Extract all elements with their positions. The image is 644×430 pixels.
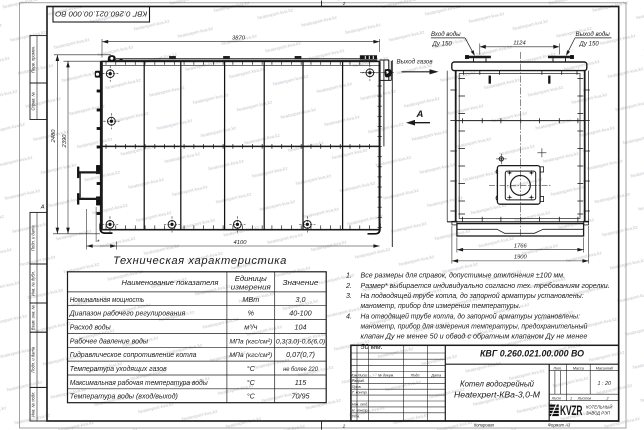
- svg-text:Дата: Дата: [430, 373, 441, 377]
- svg-text:Формат А3: Формат А3: [548, 423, 571, 428]
- svg-text:м³/ч: м³/ч: [244, 323, 257, 332]
- svg-text:3870: 3870: [232, 36, 246, 42]
- svg-text:Копировал: Копировал: [474, 423, 495, 428]
- svg-text:2: 2: [342, 424, 346, 429]
- svg-text:3,0: 3,0: [296, 295, 306, 304]
- svg-text:2.: 2.: [345, 281, 352, 290]
- svg-text:1.: 1.: [346, 271, 352, 280]
- svg-text:0,07(0,7): 0,07(0,7): [286, 350, 315, 359]
- svg-text:Вход воды: Вход воды: [431, 31, 461, 38]
- svg-text:КОТЕЛЬНЫЙ: КОТЕЛЬНЫЙ: [586, 405, 612, 410]
- svg-text:Heatexpert-КВа-3,0-М: Heatexpert-КВа-3,0-М: [454, 391, 540, 400]
- svg-text:Разраб.: Разраб.: [352, 379, 365, 383]
- svg-text:Подп. и дата: Подп. и дата: [30, 346, 35, 372]
- svg-text:115: 115: [295, 378, 307, 387]
- svg-text:МПа (кгс/см²): МПа (кгс/см²): [229, 338, 272, 345]
- svg-text:манометр, прибор для измерения: манометр, прибор для измерения температу…: [361, 301, 521, 310]
- svg-text:Все размеры для справок, допус: Все размеры для справок, допустимые откл…: [361, 271, 566, 280]
- svg-text:1: 1: [570, 396, 572, 400]
- svg-text:манометр, прибор для измерения: манометр, прибор для измерения температу…: [361, 321, 588, 330]
- svg-text:Номинальная мощность: Номинальная мощность: [70, 295, 145, 304]
- svg-text:%: %: [248, 309, 255, 318]
- svg-text:На отводящей трубе котла, до з: На отводящей трубе котла, до запорной ар…: [361, 311, 581, 320]
- svg-text:Котел водогрейный: Котел водогрейный: [460, 379, 535, 388]
- svg-text:Наименование показателя: Наименование показателя: [122, 278, 219, 287]
- svg-text:Температура воды (вход/выход): Температура воды (вход/выход): [70, 392, 179, 401]
- svg-text:Пров.: Пров.: [352, 385, 362, 389]
- svg-text:1766: 1766: [514, 243, 528, 249]
- svg-text:1900: 1900: [514, 255, 528, 261]
- svg-text:Ду 150: Ду 150: [432, 41, 453, 48]
- svg-text:°С: °С: [247, 392, 256, 401]
- svg-text:Масса: Масса: [573, 367, 584, 371]
- svg-text:На подводящей трубе котла, до: На подводящей трубе котла, до запорной а…: [361, 291, 584, 300]
- svg-text:Листов: Листов: [577, 396, 592, 400]
- svg-text:Единицы: Единицы: [235, 274, 267, 283]
- svg-text:Техническая характеристика: Техническая характеристика: [113, 255, 287, 267]
- svg-text:клапан Ду не менее 50 и обвод: клапан Ду не менее 50 и обвод с обратным…: [361, 332, 588, 341]
- svg-text:измерения: измерения: [231, 283, 271, 292]
- svg-text:°С: °С: [247, 364, 256, 373]
- svg-text:Максимальная рабочая температу: Максимальная рабочая температура воды: [70, 378, 208, 387]
- svg-text:2390: 2390: [62, 134, 68, 149]
- svg-text:Масштаб: Масштаб: [596, 367, 614, 371]
- svg-text:Изм: Изм: [350, 373, 357, 377]
- svg-text:Инв. № подл.: Инв. № подл.: [30, 391, 35, 416]
- svg-text:Рабочее давление воды: Рабочее давление воды: [70, 336, 149, 345]
- svg-text:1 : 20: 1 : 20: [598, 381, 612, 387]
- svg-text:Утв.: Утв.: [352, 415, 360, 419]
- svg-text:А: А: [416, 109, 424, 120]
- svg-text:Инв. № дубл.: Инв. № дубл.: [30, 271, 35, 296]
- svg-text:Выход воды: Выход воды: [576, 31, 611, 38]
- svg-text:Подп.: Подп.: [411, 373, 421, 377]
- svg-text:50 мм.: 50 мм.: [361, 342, 383, 351]
- svg-text:Справ. №: Справ. №: [30, 91, 35, 110]
- svg-text:Расход воды: Расход воды: [70, 323, 112, 332]
- svg-text:№ докум.: № докум.: [378, 373, 394, 377]
- svg-text:2: 2: [342, 1, 346, 6]
- svg-text:KVZR: KVZR: [560, 404, 582, 418]
- svg-text:ЗАВОД РЭП: ЗАВОД РЭП: [586, 411, 611, 416]
- svg-text:104: 104: [295, 323, 307, 332]
- svg-text:Н. контр.: Н. контр.: [352, 408, 369, 412]
- svg-text:Размер* выбирается индивидуаль: Размер* выбирается индивидуально согласн…: [361, 281, 610, 290]
- svg-text:2: 2: [605, 396, 608, 400]
- svg-text:70/95: 70/95: [292, 392, 311, 401]
- svg-text:3.: 3.: [346, 291, 352, 300]
- svg-text:°С: °С: [247, 378, 256, 387]
- svg-text:Подп. и дата: Подп. и дата: [30, 225, 35, 251]
- svg-text:4100: 4100: [234, 240, 248, 246]
- svg-text:А: А: [40, 205, 45, 211]
- svg-text:МВт: МВт: [242, 295, 259, 304]
- svg-text:0,3(3,0)-0,6(6,0): 0,3(3,0)-0,6(6,0): [276, 338, 325, 345]
- svg-text:не более 220: не более 220: [283, 365, 318, 373]
- svg-text:Лист: Лист: [551, 396, 562, 400]
- svg-text:Лист: Лист: [357, 373, 368, 377]
- svg-text:Выход газов: Выход газов: [397, 59, 434, 66]
- svg-text:КВГ 0.260.021.00.000 ВО: КВГ 0.260.021.00.000 ВО: [480, 348, 585, 359]
- svg-text:Ду 150: Ду 150: [579, 41, 600, 48]
- svg-text:40-100: 40-100: [289, 309, 311, 318]
- svg-text:Значение: Значение: [283, 278, 319, 287]
- svg-text:Температура уходящих газов: Температура уходящих газов: [70, 364, 167, 373]
- svg-text:Т. контр.: Т. контр.: [352, 391, 368, 395]
- svg-text:2480: 2480: [51, 129, 57, 144]
- svg-text:КВГ 0.260.021.00.000 ВО: КВГ 0.260.021.00.000 ВО: [55, 9, 147, 18]
- svg-text:4.: 4.: [346, 311, 352, 320]
- svg-text:МПа (кгс/см²): МПа (кгс/см²): [229, 352, 272, 359]
- svg-text:Нач. отд.: Нач. отд.: [352, 403, 369, 407]
- svg-text:Диапазон рабочего регулировани: Диапазон рабочего регулирования: [69, 309, 186, 318]
- svg-text:Перв. примен.: Перв. примен.: [30, 46, 35, 73]
- svg-text:Гидравлическое сопротивление к: Гидравлическое сопротивление котла: [70, 350, 197, 359]
- svg-text:Взам. инв. №: Взам. инв. №: [30, 304, 35, 330]
- svg-text:Лит.: Лит.: [552, 367, 562, 371]
- svg-text:1124: 1124: [513, 41, 525, 47]
